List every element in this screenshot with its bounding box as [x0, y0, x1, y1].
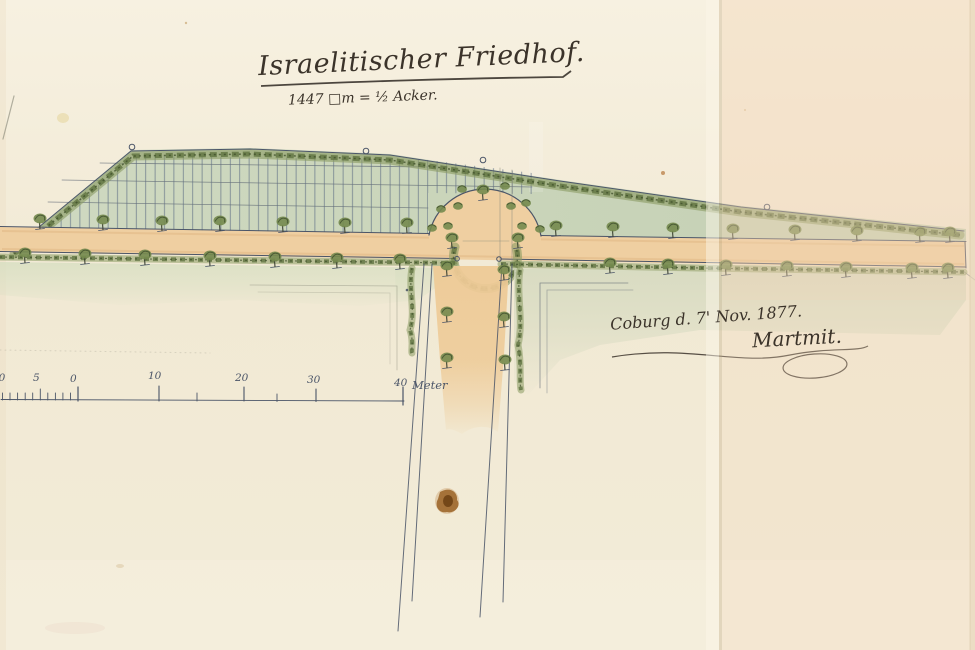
scale-tick-label-40: 40: [394, 377, 407, 389]
scale-tick-label-5: 5: [33, 372, 40, 384]
scale-tick-label-20: 20: [235, 372, 248, 384]
road-hedge-right: [518, 270, 521, 390]
scale-tick-label-30: 30: [307, 374, 320, 386]
cemetery-plan-scan: Israelitischer Friedhof. 1447 □m = ½ Ack…: [0, 0, 975, 650]
scale-unit-label: Meter: [412, 378, 448, 392]
scan-right-edge: [970, 0, 975, 650]
scale-tick-label-0: 0: [70, 373, 77, 385]
scale-tick-label-10: 10: [148, 370, 161, 382]
signature: Martmit.: [751, 324, 842, 353]
road-hedge-left: [410, 268, 412, 353]
scale-tick-label-left10: 10: [0, 372, 5, 384]
